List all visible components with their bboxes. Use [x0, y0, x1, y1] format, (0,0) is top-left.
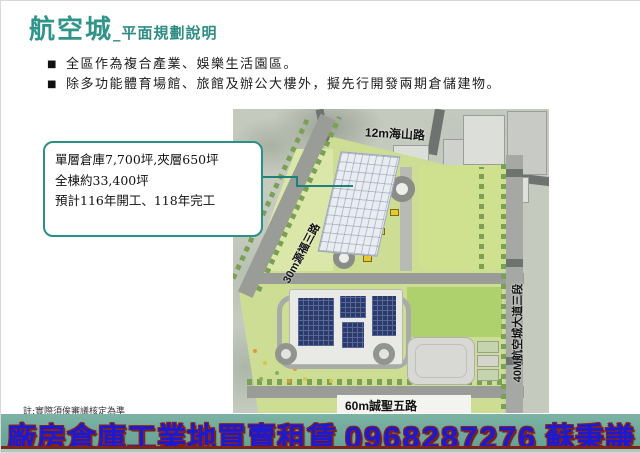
planting-dot — [303, 377, 307, 381]
truck-marker — [390, 209, 399, 216]
solar-panel — [342, 322, 364, 348]
aerial-building — [463, 115, 505, 165]
tree-row — [501, 159, 506, 409]
planting-dot — [263, 361, 267, 365]
tree-row — [479, 167, 484, 269]
bullet-item: ■除多功能體育場館、旅館及辦公大樓外，擬先行開發兩期倉儲建物。 — [47, 73, 501, 92]
green-field — [407, 287, 502, 337]
bullet-square-icon: ■ — [47, 59, 58, 70]
solar-panel — [298, 298, 334, 346]
page-title: 航空城_平面規劃說明 — [29, 9, 218, 46]
annex-strip — [477, 355, 499, 367]
callout-box: 單層倉庫7,700坪,夾層650坪 全棟約33,400坪 預計116年開工、11… — [43, 141, 263, 237]
spiral-ramp — [373, 343, 395, 365]
gray-building — [407, 337, 475, 385]
annex-strip — [477, 341, 499, 353]
planting-dot — [253, 349, 257, 353]
callout-line: 全棟約33,400坪 — [55, 171, 253, 192]
road-segment — [506, 259, 523, 267]
presentation-slide: 航空城_平面規劃說明 ■全區作為複合產業、娛樂生活園區。 ■除多功能體育場館、旅… — [0, 0, 640, 453]
spiral-ramp — [275, 343, 297, 365]
road-label-haishan: 12m海山路 — [365, 123, 426, 143]
bullet-square-icon: ■ — [47, 79, 58, 90]
callout-line: 預計116年開工、118年完工 — [55, 191, 253, 212]
solar-panel — [340, 296, 366, 318]
ad-banner: 廠房倉庫工業地買賣租賃 0968287276 蘇秉謙 — [1, 414, 640, 452]
road-label-chengsheng: 60m誠聖五路 — [345, 397, 417, 413]
bullet-item: ■全區作為複合產業、娛樂生活園區。 — [47, 53, 298, 72]
planting-dot — [287, 379, 291, 383]
planting-dot — [329, 379, 333, 383]
site-plan-map: 12m海山路 30m源福三路 40M航空城大道三段 60m誠聖五路 — [233, 109, 549, 413]
planting-dot — [275, 371, 279, 375]
bullet-text: 全區作為複合產業、娛樂生活園區。 — [66, 57, 298, 72]
bullet-text: 除多功能體育場館、旅館及辦公大樓外，擬先行開發兩期倉儲建物。 — [66, 77, 501, 92]
title-main: 航空城 — [29, 15, 113, 45]
road-segment — [506, 169, 523, 177]
title-sub: _平面規劃說明 — [113, 24, 218, 42]
callout-line: 單層倉庫7,700坪,夾層650坪 — [55, 150, 253, 171]
gray-building-outline — [415, 344, 467, 378]
planting-dot — [259, 377, 263, 381]
road-label-hangkongcheng-blvd: 40M航空城大道三段 — [509, 273, 525, 393]
annex-strip — [477, 369, 499, 381]
green-field — [419, 165, 506, 269]
solar-panel — [372, 296, 396, 336]
